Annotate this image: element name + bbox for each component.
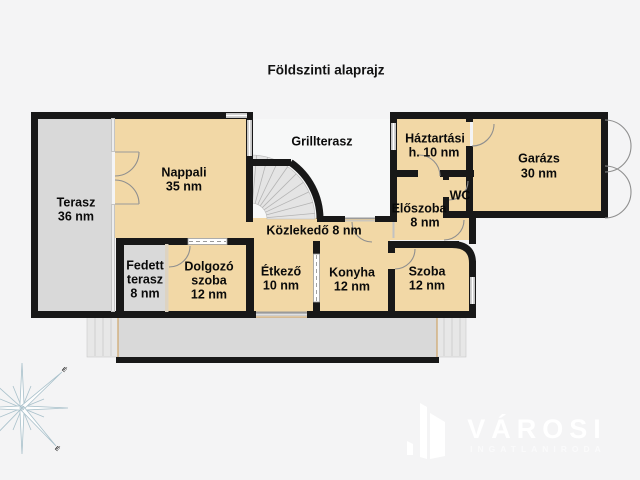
- watermark-brand: VÁROSI: [467, 413, 607, 444]
- fedett-terasz-area-label: 8 nm: [130, 286, 159, 300]
- kozlekedo-label: Közlekedő 8 nm: [266, 223, 361, 237]
- konyha-name-label: Konyha: [329, 265, 376, 279]
- dolgozo-name2-label: szoba: [191, 273, 227, 287]
- etkezo-name-label: Étkező: [261, 263, 302, 278]
- grillterasz-label: Grillterasz: [291, 134, 352, 148]
- szoba-area-label: 12 nm: [409, 278, 445, 292]
- floorplan-page: É É Földszinti alaprajz Terasz 36 nm Nap…: [0, 0, 640, 480]
- nappali-area-label: 35 nm: [166, 179, 202, 193]
- etkezo-area-label: 10 nm: [263, 278, 299, 292]
- lower-terrace-edge: [116, 357, 439, 363]
- logo-building-icon: [420, 403, 427, 459]
- fedett-terasz-name-label: Fedett: [126, 258, 164, 272]
- garden-terrace: [87, 317, 466, 363]
- compass-rose: É É: [0, 363, 68, 454]
- lower-terrace: [118, 317, 437, 358]
- nappali-name-label: Nappali: [161, 165, 206, 179]
- watermark-logo: VÁROSI INGATLANIRODA: [407, 403, 607, 459]
- garazs-name-label: Garázs: [518, 151, 560, 165]
- logo-building-icon: [430, 413, 445, 459]
- terasz-area-label: 36 nm: [58, 209, 94, 223]
- garazs-area-label: 30 nm: [521, 166, 557, 180]
- page-title: Földszinti alaprajz: [267, 63, 384, 78]
- wc-label: WC: [450, 188, 471, 202]
- eloszoba-name-label: Előszoba: [392, 201, 448, 215]
- garage-door-icon: [605, 166, 631, 218]
- compass-south-tip-label: É: [53, 444, 61, 453]
- garage-door-icon: [605, 120, 631, 172]
- fedett-terasz-name2-label: terasz: [127, 272, 163, 286]
- szoba-name-label: Szoba: [409, 264, 447, 278]
- terasz-name-label: Terasz: [57, 195, 96, 209]
- eloszoba-area-label: 8 nm: [410, 215, 439, 229]
- window-icon: [188, 239, 227, 245]
- haztartasi-area-label: h. 10 nm: [409, 145, 460, 159]
- haztartasi-name-label: Háztartási: [405, 131, 465, 145]
- grill-terrace-door-icon: [345, 218, 375, 220]
- dolgozo-area-label: 12 nm: [191, 287, 227, 301]
- dolgozo-name-label: Dolgozó: [184, 259, 234, 273]
- logo-building-icon: [407, 441, 413, 455]
- watermark-tagline: INGATLANIRODA: [470, 444, 606, 454]
- terrace-door-icon: [256, 312, 307, 314]
- floorplan-drawing: É É Földszinti alaprajz Terasz 36 nm Nap…: [0, 0, 640, 480]
- konyha-area-label: 12 nm: [334, 279, 370, 293]
